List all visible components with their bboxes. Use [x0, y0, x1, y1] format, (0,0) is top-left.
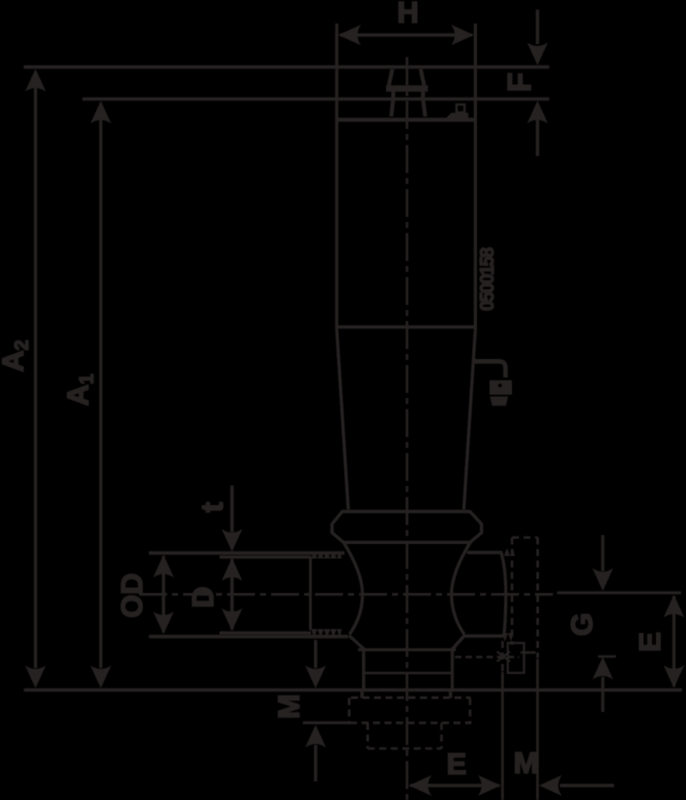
svg-text:M: M — [514, 747, 539, 780]
svg-text:H: H — [397, 0, 419, 30]
svg-text:D: D — [187, 586, 220, 608]
svg-text:E: E — [446, 748, 466, 781]
svg-text:G: G — [566, 613, 599, 636]
svg-text:0500158: 0500158 — [478, 247, 499, 311]
svg-text:M: M — [273, 694, 306, 719]
svg-text:E: E — [634, 632, 667, 652]
svg-text:A2: A2 — [0, 340, 33, 372]
svg-text:t: t — [195, 502, 230, 512]
svg-text:A1: A1 — [62, 373, 98, 406]
svg-text:OD: OD — [116, 573, 149, 618]
svg-text:F: F — [502, 72, 538, 92]
